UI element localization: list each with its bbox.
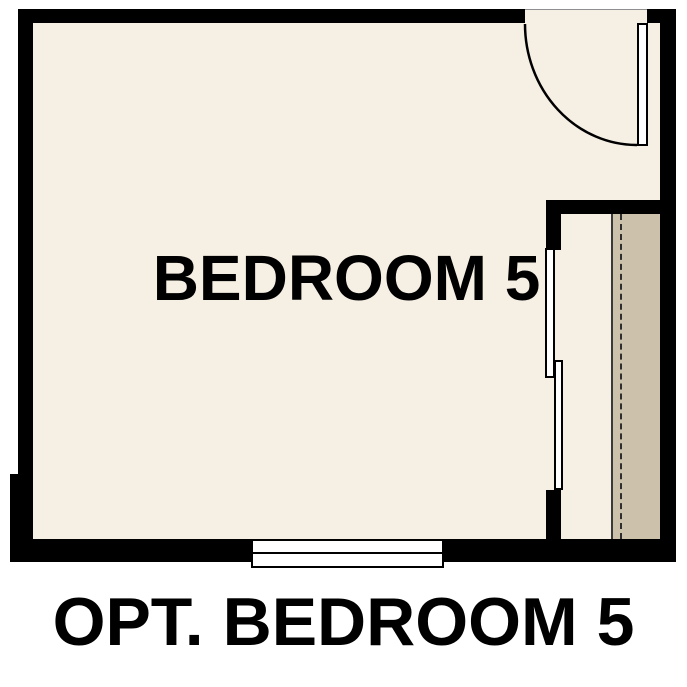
closet-wall-front-lower — [546, 490, 561, 539]
window-icon — [251, 539, 444, 568]
wall-left-upper — [18, 9, 33, 474]
floor-plan: BEDROOM 5 OPT. BEDROOM 5 — [0, 0, 687, 687]
closet-wall-front-upper — [546, 214, 561, 250]
closet-bypass-panel-right-icon — [554, 360, 563, 490]
window-mid-line — [253, 552, 442, 554]
room-label: BEDROOM 5 — [33, 248, 660, 308]
plan-caption: OPT. BEDROOM 5 — [0, 585, 687, 659]
wall-right — [660, 9, 676, 562]
door-opening — [525, 9, 647, 24]
closet-wall-top — [546, 200, 660, 214]
door-leaf-icon — [637, 23, 648, 146]
wall-top — [18, 9, 525, 23]
